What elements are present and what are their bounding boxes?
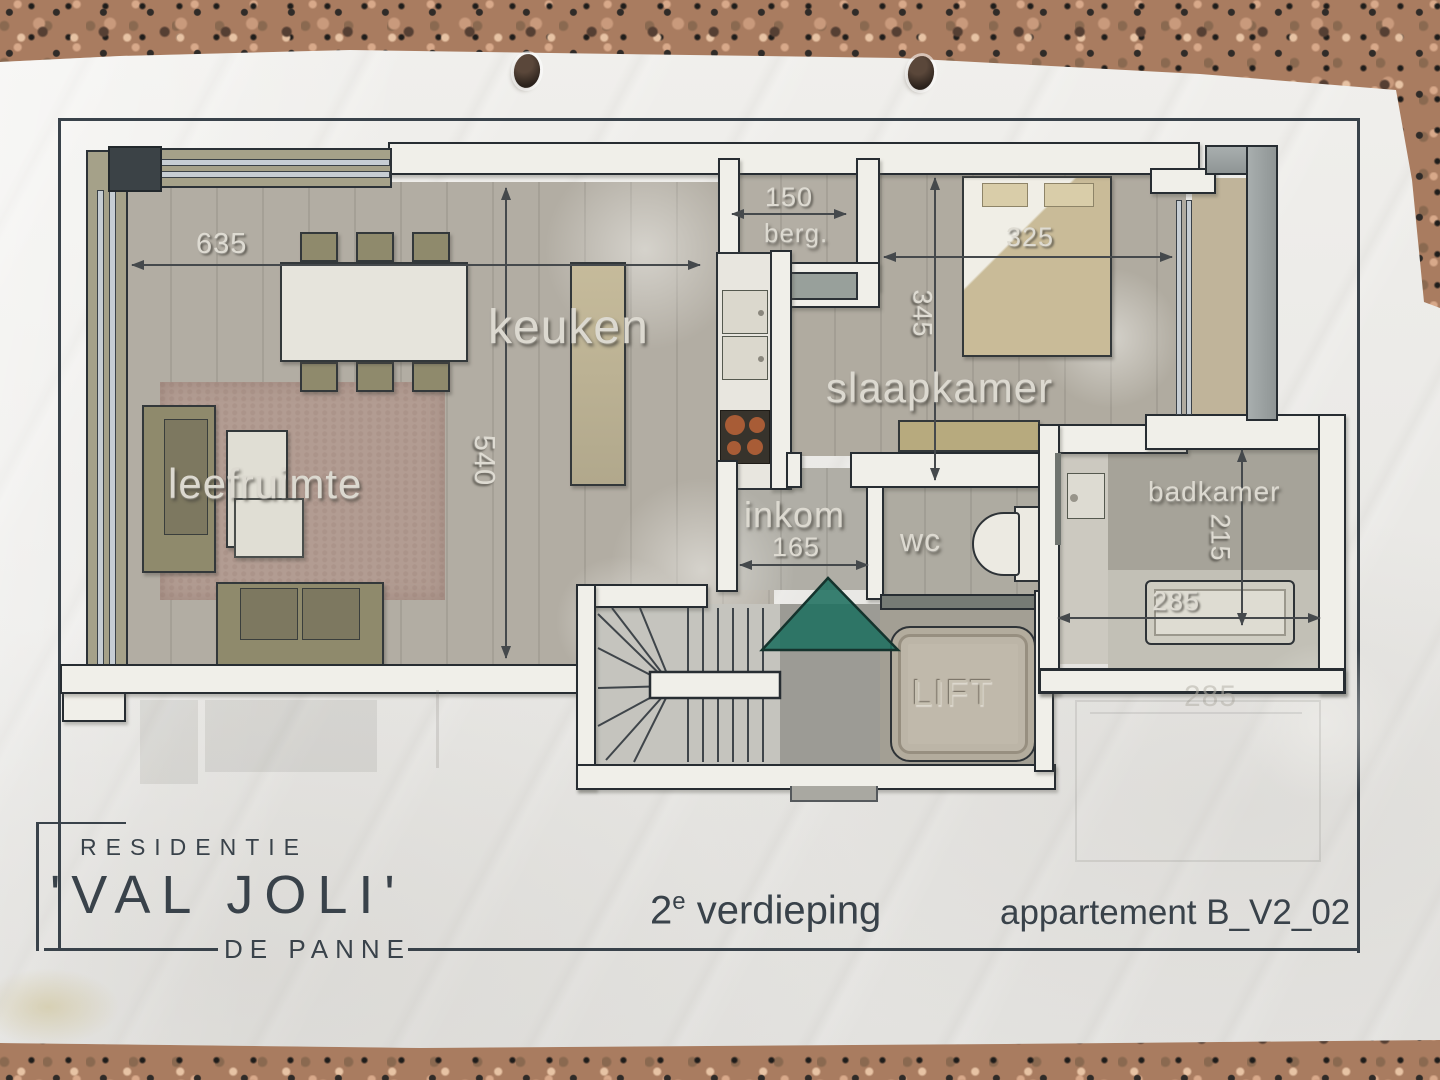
- dim-label-325: 325: [1006, 222, 1054, 253]
- plan-border-top: [58, 118, 1360, 121]
- dim-line-165: [740, 564, 868, 566]
- bed-pillow: [982, 183, 1028, 207]
- plan-border-bottom-right: [408, 948, 1360, 951]
- kitchen-island: [570, 262, 626, 486]
- balcony-railing-right: [1246, 145, 1278, 421]
- ghost-dim-line: [436, 690, 439, 768]
- dining-chair: [300, 232, 338, 262]
- title-building-type: RESIDENTIE: [80, 834, 308, 861]
- floor-suffix: e: [672, 888, 685, 915]
- ghost-dim-line: [1090, 712, 1302, 714]
- burner: [727, 441, 741, 455]
- paper-stain: [0, 968, 120, 1046]
- room-label-hall: inkom: [744, 494, 845, 536]
- dim-line-635: [132, 264, 700, 266]
- dim-label-285: 285: [1152, 586, 1200, 617]
- room-label-bedroom: slaapkamer: [826, 364, 1053, 412]
- dining-chair: [356, 232, 394, 262]
- wall-bathroom-right: [1318, 414, 1346, 694]
- window-wall-left: [86, 150, 128, 690]
- plan-border-left: [58, 118, 61, 950]
- bed: [962, 176, 1112, 357]
- wardrobe: [898, 420, 1040, 452]
- wall-corner-block: [108, 146, 162, 192]
- dim-label-540: 540: [467, 435, 500, 486]
- ghost-sofa: [205, 700, 377, 772]
- dim-label-150: 150: [765, 182, 813, 213]
- dining-chair: [412, 232, 450, 262]
- wall-bedroom-bottom: [850, 452, 1050, 488]
- dining-chair: [412, 362, 450, 392]
- dim-label-165: 165: [772, 532, 820, 563]
- room-label-storage: berg.: [764, 218, 828, 249]
- staircase-drawing: [576, 566, 1056, 806]
- dim-label-345: 345: [907, 289, 938, 337]
- cabinet-knob: [758, 356, 764, 362]
- floor-terrace: [1192, 178, 1248, 418]
- dining-chair: [356, 362, 394, 392]
- room-label-kitchen: keuken: [488, 300, 649, 355]
- ghost-armchair: [140, 700, 198, 784]
- window-glazing: [150, 159, 390, 166]
- window-glazing-bedroom: [1186, 200, 1192, 415]
- floor-number: 2: [650, 888, 672, 932]
- photo-of-floor-plan: LIFT 635 540 150 325 3: [0, 0, 1440, 1080]
- burner: [747, 439, 763, 455]
- title-rule-left: [44, 948, 218, 951]
- plan-border-right: [1357, 118, 1360, 953]
- burner: [749, 417, 765, 433]
- dining-table: [280, 262, 468, 362]
- caption-floor: 2e verdieping: [650, 888, 881, 933]
- room-label-wc: wc: [900, 522, 941, 559]
- window-glazing: [97, 190, 104, 670]
- cooktop: [720, 410, 770, 464]
- room-label-living: leefruimte: [168, 460, 362, 508]
- dining-chair: [300, 362, 338, 392]
- wall-bathroom-top-right: [1145, 414, 1331, 450]
- room-label-bathroom: badkamer: [1148, 476, 1281, 508]
- title-block-line-top: [36, 822, 126, 824]
- wall-top: [388, 142, 1200, 175]
- cabinet-knob: [758, 310, 764, 316]
- dim-line-325: [884, 256, 1172, 258]
- shower-screen: [1055, 453, 1061, 545]
- wall-bedroom-bottom-piece: [786, 452, 802, 488]
- sofa-cushion: [240, 588, 298, 640]
- sofa-cushion: [302, 588, 360, 640]
- dim-line-150: [732, 213, 846, 215]
- sofa: [216, 582, 384, 666]
- window-glazing: [109, 190, 116, 670]
- ghost-neighbour-room: [1075, 700, 1321, 862]
- title-block-line-left: [36, 822, 39, 951]
- wall-living-bottom: [60, 664, 580, 694]
- floor-word: verdieping: [697, 888, 882, 932]
- dim-line-285: [1058, 617, 1320, 619]
- title-city: DE PANNE: [224, 934, 411, 965]
- dim-label-215: 215: [1205, 513, 1236, 561]
- caption-apartment: appartement B_V2_02: [1000, 893, 1350, 933]
- bed-pillow: [1044, 183, 1094, 207]
- door-knob: [1070, 494, 1078, 502]
- dim-label-635: 635: [196, 228, 247, 261]
- entrance-arrow-icon: [762, 578, 898, 650]
- window-glazing-bedroom: [1176, 200, 1182, 415]
- window-glazing: [150, 171, 390, 178]
- dim-line-540: [505, 188, 507, 658]
- title-residence-name: 'VAL JOLI': [50, 864, 406, 926]
- burner: [725, 415, 745, 435]
